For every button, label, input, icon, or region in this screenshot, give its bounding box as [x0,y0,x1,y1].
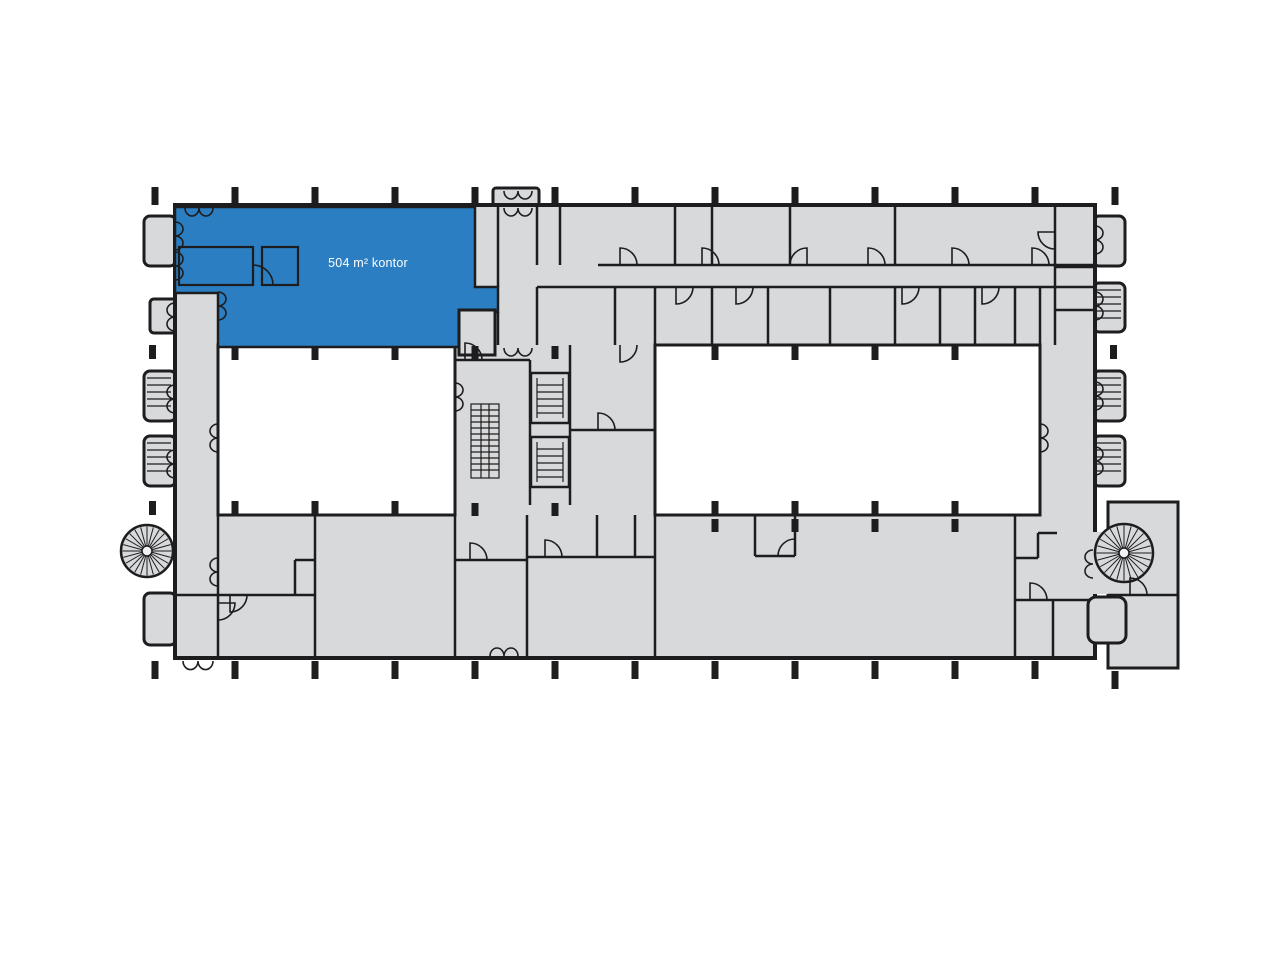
floor-plan-page: 504 m² kontor [0,0,1280,960]
east-courtyard [655,345,1040,515]
ticks-top [152,187,1119,205]
highlight-area[interactable]: 504 m² kontor [175,207,498,355]
area-label: 504 m² kontor [328,256,408,270]
ticks-ext [1112,671,1119,689]
spiral-staircase-icon [1095,524,1153,582]
annex-room [144,593,176,645]
spiral-staircase-icon [121,525,173,577]
west-courtyard [218,345,455,515]
ticks-right [1110,345,1117,359]
floor-plan-canvas: 504 m² kontor [0,0,1280,960]
annex-room [144,216,176,266]
ticks-bottom [152,661,1039,679]
annex-room [1088,597,1126,643]
highlighted-unit[interactable] [175,207,498,347]
